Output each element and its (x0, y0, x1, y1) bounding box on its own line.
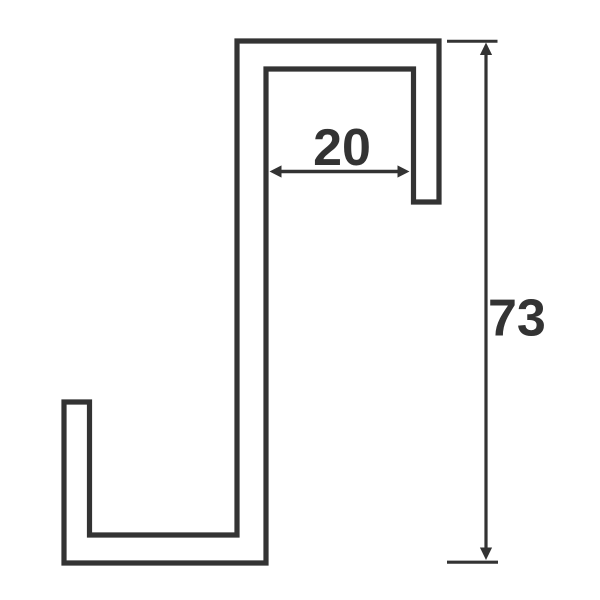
svg-text:20: 20 (313, 119, 371, 177)
svg-text:73: 73 (488, 290, 546, 348)
